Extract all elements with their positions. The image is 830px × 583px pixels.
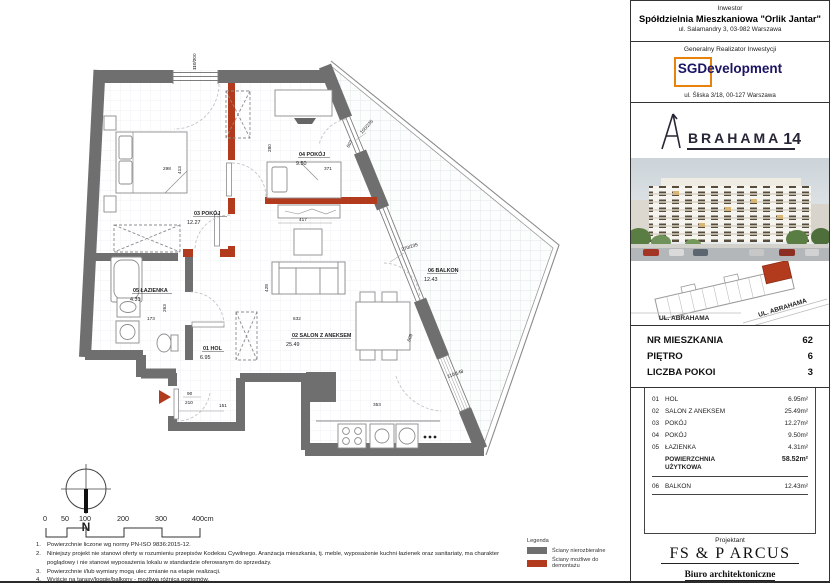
note-item: 1. Powierzchnie liczone wg normy PN-ISO … — [36, 541, 516, 550]
area-no: 02 — [652, 408, 665, 415]
note-number: 2. — [36, 550, 47, 568]
note-number: 3. — [36, 568, 47, 577]
area-row: 03 POKÓJ 12.27m² — [652, 420, 808, 427]
sgdevelopment-logo: SGDevelopment — [678, 60, 782, 86]
realizator-address: ul. Śliska 3/18, 00-127 Warszawa — [631, 92, 829, 99]
scale-tick: 0 — [43, 514, 47, 523]
floor-plan-panel: 03 POKÓJ 12.27 04 POKÓJ 9.50 05 ŁAZIENKA… — [0, 0, 630, 583]
dim-label: 353 — [373, 402, 381, 407]
unit-info-row: NR MIESZKANIA 62 — [647, 335, 813, 346]
brochure-page: 03 POKÓJ 12.27 04 POKÓJ 9.50 05 ŁAZIENKA… — [0, 0, 830, 583]
dim-label: 280 — [267, 144, 272, 152]
room-label: 05 ŁAZIENKA — [133, 288, 168, 294]
area-row: 04 POKÓJ 9.50m² — [652, 432, 808, 439]
designer-section: Projektant FS & P ARCUS Biuro architekto… — [631, 534, 829, 582]
room-label: 04 POKÓJ — [299, 150, 325, 158]
area-row: 05 ŁAZIENKA 4.31m² — [652, 444, 808, 451]
note-item: 4. Wyjście na tarasy/loggie/balkony - mo… — [36, 576, 516, 583]
abrahama-logo: BRAHAMA 14 — [659, 112, 801, 150]
building-photo — [631, 158, 829, 261]
street-label: UL. ABRAHAMA — [659, 315, 710, 322]
legend-item: Ściany możliwe do demontażu — [527, 557, 627, 569]
area-name: BALKON — [665, 483, 785, 490]
fixed-wall-swatch — [527, 547, 547, 554]
area-no: 06 — [652, 483, 665, 490]
designer-label: Projektant — [631, 537, 829, 544]
investor-section: Inwestor Spółdzielnia Mieszkaniowa "Orli… — [631, 1, 829, 42]
designer-subtitle: Biuro architektoniczne — [685, 570, 776, 581]
dim-label: 173 — [147, 316, 155, 321]
dim-label: 90 — [187, 391, 193, 396]
project-logo-section: BRAHAMA 14 — [631, 103, 829, 158]
unit-info-value: 6 — [808, 351, 813, 362]
scale-tick: 100 — [79, 514, 91, 523]
area-no: 03 — [652, 420, 665, 427]
brand-text: BRAHAMA — [687, 130, 795, 150]
structural-column — [306, 372, 336, 402]
area-value: 25.49m² — [785, 408, 808, 415]
area-value: 12.43m² — [785, 483, 808, 490]
room-area: 6.95 — [200, 355, 211, 361]
scale-tick: 50 — [61, 514, 69, 523]
note-item: 2. Niniejszy projekt nie stanowi oferty … — [36, 550, 516, 568]
total-area-row: POWIERZCHNIA UŻYTKOWA 58.52m² — [652, 456, 808, 477]
area-name: POKÓJ — [665, 420, 785, 427]
area-value: 9.50m² — [788, 432, 808, 439]
area-name: SALON Z ANEKSEM — [665, 408, 785, 415]
realizator-label: Generalny Realizator Inwestycji — [631, 46, 829, 53]
note-text: Powierzchnie i/lub wymiary mogą ulec zmi… — [47, 568, 516, 577]
area-row: 01 HOL 6.95m² — [652, 396, 808, 403]
room-label: 06 BALKON — [428, 268, 459, 274]
room-label: 02 SALON Z ANEKSEM — [292, 333, 352, 339]
area-name: HOL — [665, 396, 788, 403]
site-plan-section: UL. ABRAHAMA UL. ABRAHAMA — [631, 261, 829, 326]
dim-label: 417 — [299, 217, 307, 222]
unit-info-label: LICZBA POKOI — [647, 367, 715, 378]
floor-plan-drawing: 03 POKÓJ 12.27 04 POKÓJ 9.50 05 ŁAZIENKA… — [0, 0, 630, 583]
dim-label: 151 — [219, 403, 227, 408]
room-area: 4.31 — [130, 297, 141, 303]
brand-number: 14 — [783, 131, 801, 150]
dim-label: 298 — [163, 166, 171, 171]
dresser-icon — [278, 205, 340, 218]
washing-machine-icon — [116, 321, 139, 343]
area-name: POKÓJ — [665, 432, 788, 439]
room-area: 9.50 — [296, 161, 307, 167]
dim-label: 110/200 — [192, 53, 197, 70]
area-value: 12.27m² — [785, 420, 808, 427]
areas-table: 01 HOL 6.95m² 02 SALON Z ANEKSEM 25.49m²… — [644, 388, 816, 534]
note-text: Wyjście na tarasy/loggie/balkony - możli… — [47, 576, 516, 583]
note-number: 4. — [36, 576, 47, 583]
room-label: 03 POKÓJ — [194, 209, 220, 217]
scale-bar: 0 50 100 200 300 400cm — [43, 514, 214, 537]
legend-label: Ściany możliwe do demontażu — [552, 557, 627, 569]
room-label: 01 HOL — [203, 346, 223, 352]
entrance-marker-icon — [159, 390, 171, 404]
building-render-icon — [631, 158, 829, 261]
room-area: 12.27 — [187, 220, 201, 226]
legend-title: Legenda — [527, 538, 627, 544]
investor-name: Spółdzielnia Mieszkaniowa "Orlik Jantar" — [631, 14, 829, 24]
dim-label: 263 — [162, 304, 167, 312]
unit-info-row: PIĘTRO 6 — [647, 351, 813, 362]
unit-info-value: 3 — [808, 367, 813, 378]
area-value: 6.95m² — [788, 396, 808, 403]
removable-wall-swatch — [527, 560, 547, 567]
area-row: 02 SALON Z ANEKSEM 25.49m² — [652, 408, 808, 415]
area-name: ŁAZIENKA — [665, 444, 788, 451]
scale-tick: 300 — [155, 514, 167, 523]
unit-info-section: NR MIESZKANIA 62 PIĘTRO 6 LICZBA POKOI 3 — [631, 326, 829, 388]
balcony-area-row: 06 BALKON 12.43m² — [652, 482, 808, 495]
room-area: 25.49 — [286, 342, 300, 348]
toilet-icon — [157, 334, 178, 352]
realizator-section: Generalny Realizator Inwestycji SGDevelo… — [631, 42, 829, 103]
dim-label: 428 — [264, 284, 269, 292]
note-number: 1. — [36, 541, 47, 550]
info-sidebar: Inwestor Spółdzielnia Mieszkaniowa "Orli… — [630, 0, 830, 583]
dim-label: 632 — [293, 316, 301, 321]
scale-tick: 200 — [117, 514, 129, 523]
total-area-value: 58.52m² — [749, 456, 808, 463]
unit-info-value: 62 — [802, 335, 813, 346]
legend-item: Ściany nierozbieralne — [527, 547, 627, 554]
unit-info-label: PIĘTRO — [647, 351, 683, 362]
sofa-icon — [272, 262, 345, 294]
wall-legend: Legenda Ściany nierozbieralne Ściany moż… — [527, 538, 627, 572]
dining-table-icon — [356, 292, 410, 360]
legend-label: Ściany nierozbieralne — [552, 548, 605, 554]
designer-name: FS & P ARCUS — [661, 544, 798, 564]
room-area: 12.43 — [424, 277, 438, 283]
total-area-label: POWIERZCHNIA UŻYTKOWA — [665, 456, 749, 472]
site-plan-icon: UL. ABRAHAMA UL. ABRAHAMA — [631, 261, 829, 325]
plan-notes: 1. Powierzchnie liczone wg normy PN-ISO … — [36, 541, 516, 583]
scale-tick: 400cm — [192, 514, 214, 523]
note-text: Niniejszy projekt nie stanowi oferty w r… — [47, 550, 516, 568]
area-no: 05 — [652, 444, 665, 451]
area-value: 4.31m² — [788, 444, 808, 451]
investor-address: ul. Salamandry 3, 03-982 Warszawa — [631, 26, 829, 33]
dim-label: 210 — [185, 400, 193, 405]
dim-label: 413 — [177, 166, 182, 174]
unit-info-label: NR MIESZKANIA — [647, 335, 723, 346]
areas-section: 01 HOL 6.95m² 02 SALON Z ANEKSEM 25.49m²… — [631, 388, 829, 534]
bathtub-icon — [111, 257, 142, 302]
realizator-brand: SGDevelopment — [678, 61, 782, 76]
note-text: Powierzchnie liczone wg normy PN-ISO 983… — [47, 541, 516, 550]
note-item: 3. Powierzchnie i/lub wymiary mogą ulec … — [36, 568, 516, 577]
compass-a-icon — [659, 112, 687, 150]
area-no: 04 — [652, 432, 665, 439]
dim-label: 371 — [324, 166, 332, 171]
north-compass: N — [61, 464, 111, 534]
unit-info-row: LICZBA POKOI 3 — [647, 367, 813, 378]
coffee-table-icon — [294, 229, 322, 255]
area-no: 01 — [652, 396, 665, 403]
investor-label: Inwestor — [631, 5, 829, 12]
